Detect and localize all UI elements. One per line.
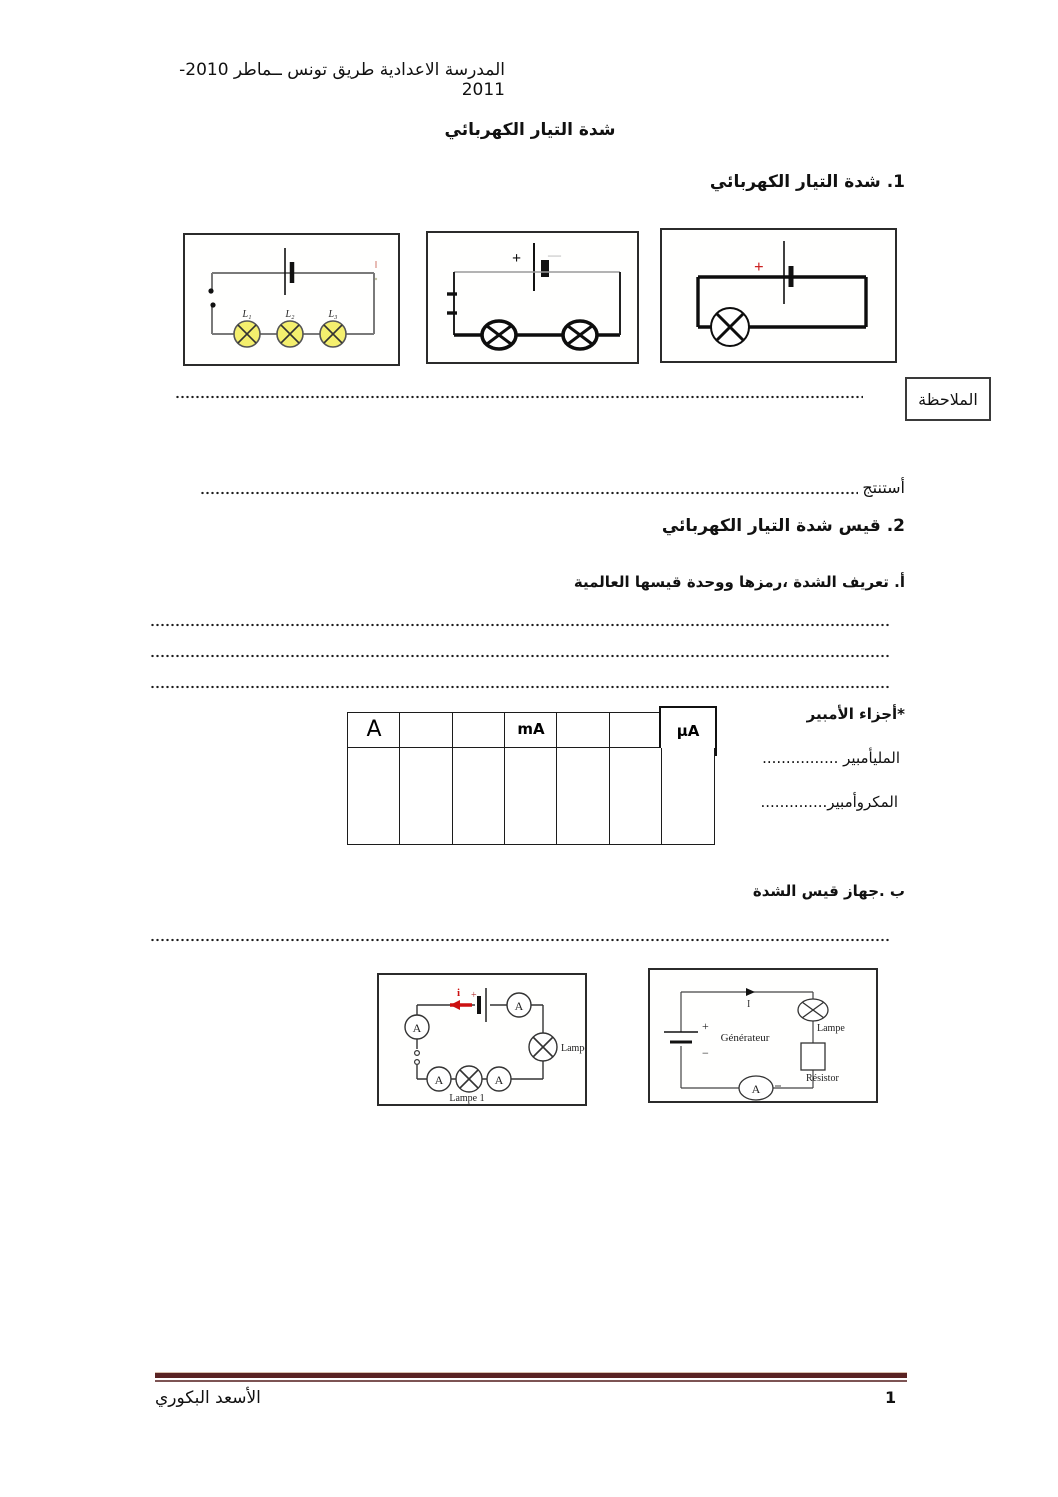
- lamp-right: [563, 321, 597, 349]
- answer-dotted-line[interactable]: [150, 654, 890, 658]
- page-title: شدة التيار الكهربائي: [420, 120, 640, 140]
- circuit-two-lamps-svg: + —: [428, 233, 637, 362]
- switch-contact-dot: [210, 302, 215, 307]
- ammeter: A: [405, 1015, 429, 1039]
- circuit-diagram-generator: + − I Générateur Lampe Résistor A: [648, 968, 878, 1103]
- current-arrow: i +: [450, 987, 477, 1010]
- microampere-label: المكروأمبير..............: [761, 793, 899, 811]
- answer-dotted-line[interactable]: [175, 395, 863, 399]
- switch-contact: [415, 1051, 420, 1056]
- circuit-diagram-ammeters: i + A A Lampe 2: [377, 973, 587, 1106]
- ammeter: A: [487, 1067, 511, 1091]
- units-table-body-row: [347, 748, 715, 845]
- lamp-L3: [320, 321, 346, 347]
- milliampere-label: المليأمبير ................: [762, 749, 900, 767]
- generator-minus-label: −: [702, 1046, 709, 1060]
- lamp-2: [529, 1033, 557, 1061]
- ammeter-label: A: [752, 1082, 761, 1096]
- worksheet-page: المدرسة الاعدادية طريق تونس ــماطر 2010-…: [0, 0, 1058, 1497]
- unit-cell-empty[interactable]: [609, 712, 663, 748]
- switch-contact: [415, 1060, 420, 1065]
- circuit-ammeters-svg: i + A A Lampe 2: [379, 975, 585, 1104]
- ampere-parts-label: *أجزاء الأمبير: [807, 705, 905, 723]
- unit-body-cell[interactable]: [661, 748, 715, 845]
- unit-body-cell[interactable]: [347, 748, 401, 845]
- unit-cell-empty[interactable]: [399, 712, 453, 748]
- battery-minus-label: —: [547, 247, 562, 262]
- lamp-label: Lampe: [817, 1023, 845, 1034]
- footer-author: الأسعد البكوري: [155, 1388, 261, 1408]
- generator-plus-label: +: [702, 1019, 709, 1033]
- resistor: [801, 1043, 825, 1070]
- unit-cell-A[interactable]: A: [347, 712, 401, 748]
- unit-cell-empty[interactable]: [452, 712, 506, 748]
- lamp-L2: [277, 321, 303, 347]
- switch-contact-dot: [208, 288, 213, 293]
- unit-body-cell[interactable]: [452, 748, 506, 845]
- circuit-series-svg: L₁ L₂ L₃: [185, 235, 398, 364]
- unit-cell-mA[interactable]: mA: [504, 712, 558, 748]
- ammeter-label: A: [413, 1021, 422, 1035]
- circuit-diagram-one-lamp: +: [660, 228, 897, 363]
- units-table: A mA µA: [347, 712, 715, 845]
- resistor-label: Résistor: [806, 1073, 839, 1084]
- circuit-generator-svg: + − I Générateur Lampe Résistor A: [650, 970, 876, 1101]
- current-label: i: [457, 987, 460, 999]
- section-2-heading: 2. قيس شدة التيار الكهربائي: [662, 516, 905, 536]
- unit-body-cell[interactable]: [556, 748, 610, 845]
- circuit-one-lamp-svg: +: [662, 230, 895, 361]
- circuit-diagram-series-three-lamps: L₁ L₂ L₃: [183, 233, 400, 366]
- answer-dotted-line[interactable]: [150, 685, 890, 689]
- battery-plus-label: +: [512, 250, 521, 267]
- lamp: [798, 999, 828, 1021]
- sub-a-heading: أ. تعريف الشدة ،رمزها ووحدة قيسها العالم…: [574, 573, 905, 591]
- unit-body-cell[interactable]: [504, 748, 558, 845]
- section-1-heading: 1. شدة التيار الكهربائي: [710, 172, 905, 192]
- current-arrow: [746, 988, 755, 996]
- sub-b-heading: ب .جهاز قيس الشدة: [753, 882, 905, 900]
- ammeter: A: [427, 1067, 451, 1091]
- units-table-header-row: A mA µA: [347, 712, 715, 748]
- ammeter: A: [739, 1076, 773, 1100]
- unit-cell-empty[interactable]: [556, 712, 610, 748]
- ammeter: A: [507, 993, 531, 1017]
- lamp-L2-label: L₂: [284, 309, 295, 320]
- unit-body-cell[interactable]: [609, 748, 663, 845]
- conclusion-label: أستنتج: [862, 478, 905, 497]
- lamp-L1-label: L₁: [241, 309, 251, 320]
- lamp-1: [456, 1066, 482, 1092]
- generator-label: Générateur: [721, 1032, 770, 1044]
- unit-cell-uA[interactable]: µA: [661, 712, 715, 748]
- lamp-left: [482, 321, 516, 349]
- circuit-diagram-two-lamps: + —: [426, 231, 639, 364]
- footer-divider: [155, 1372, 907, 1382]
- footer-page-number: 1: [885, 1388, 896, 1407]
- ammeter-label: A: [435, 1073, 444, 1087]
- lamp-L3-label: L₃: [327, 309, 338, 320]
- unit-body-cell[interactable]: [399, 748, 453, 845]
- lamp-L1: [234, 321, 260, 347]
- plus-label: +: [471, 990, 477, 1001]
- ammeter-label: A: [495, 1073, 504, 1087]
- conclusion-dotted-line[interactable]: [200, 491, 858, 495]
- battery-plus-label: +: [754, 257, 764, 276]
- note-box: الملاحظة: [905, 377, 991, 421]
- lamp: [711, 308, 749, 346]
- answer-dotted-line[interactable]: [150, 938, 890, 942]
- document-header: المدرسة الاعدادية طريق تونس ــماطر 2010-…: [160, 60, 505, 100]
- lamp-1-label: Lampe 1: [449, 1093, 484, 1104]
- ammeter-label: A: [515, 999, 524, 1013]
- current-label: I: [747, 999, 750, 1010]
- answer-dotted-line[interactable]: [150, 623, 890, 627]
- lamp-2-label: Lampe 2: [561, 1043, 585, 1054]
